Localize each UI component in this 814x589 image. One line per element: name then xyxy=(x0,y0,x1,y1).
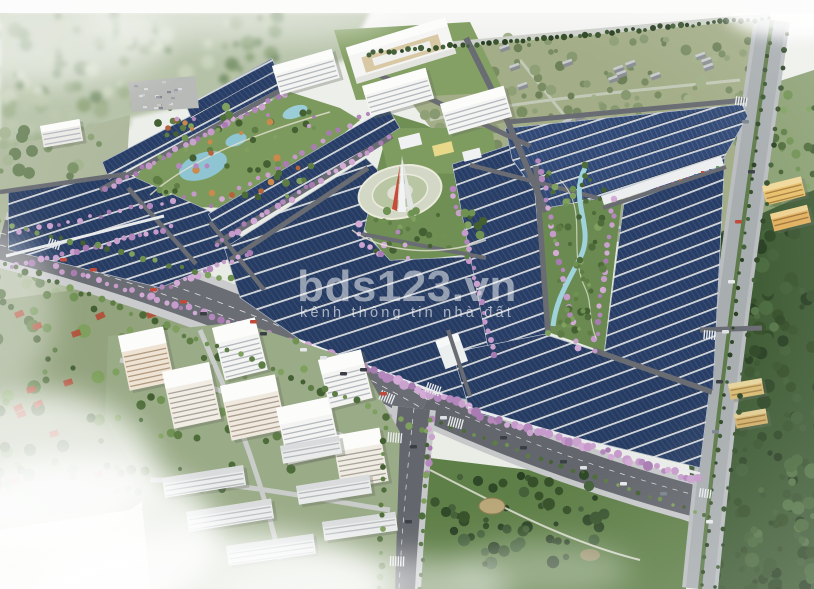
svg-text:kênh thông tin nhà đất: kênh thông tin nhà đất xyxy=(300,305,514,321)
svg-text:bds123.vn: bds123.vn xyxy=(297,262,517,311)
